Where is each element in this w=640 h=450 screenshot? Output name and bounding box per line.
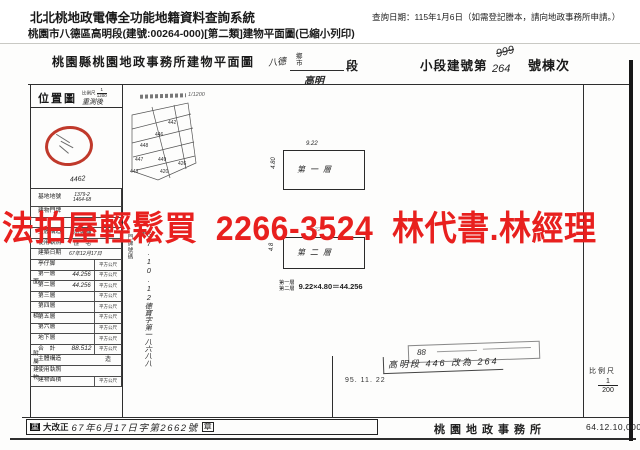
- table-row: 使用執照: [30, 366, 122, 377]
- row-unit: 平方公尺: [94, 377, 121, 387]
- map-note-bottom: 4462: [70, 175, 86, 183]
- watermark-text: 法拍屋輕鬆買 2266-3524 林代書.林經理: [2, 202, 597, 251]
- row-label: 建築日期: [31, 251, 69, 257]
- floor1-height-dim: 4.80: [271, 157, 277, 169]
- doc-township-handwriting: 八德: [267, 54, 286, 69]
- table-row: 第五層 平方公尺: [30, 313, 122, 324]
- row-label: 亭仔脚: [31, 262, 69, 268]
- map-note-top: 重測後: [82, 97, 103, 107]
- page-edge-line: [10, 438, 636, 440]
- row-value: 67年12月17日: [69, 252, 102, 257]
- table-row: 合 計 88.512 平方公尺: [30, 345, 122, 356]
- document-subtitle: 桃園市八德區高明段(建號:00264-000)[第二類]建物平面圖(已縮小列印): [28, 26, 355, 41]
- table-section-annex-label: 附屬建物: [32, 350, 38, 382]
- fill-in-line: [290, 70, 344, 71]
- frame-bottom-line: [22, 417, 631, 418]
- table-row: 第一層 44.256 平方公尺: [30, 271, 122, 282]
- page: 北北桃地政電傳全功能地籍資料查詢系統 查詢日期：115年1月6日（如需登記謄本，…: [0, 0, 640, 450]
- lot-number: 420: [160, 169, 169, 175]
- revision-label-head: 重: [30, 423, 40, 432]
- row-value: 88.512: [69, 346, 94, 353]
- plan-scale-denominator: 200: [598, 385, 618, 394]
- revision-seal: 章: [202, 422, 214, 433]
- row-value: 44.256: [69, 283, 94, 289]
- floor1-width-dim: 9.22: [306, 141, 318, 147]
- table-row: 第四層 平方公尺: [30, 302, 122, 313]
- row-value: 44.256: [69, 272, 94, 278]
- license-vertical-note: 67.10.12德寶字第一八六八八號: [138, 230, 152, 370]
- system-title: 北北桃地政電傳全功能地籍資料查詢系統: [30, 7, 255, 26]
- revision-handwriting: 67年6月17日字第2662號: [72, 420, 199, 434]
- illegible-stamp-text: [483, 347, 531, 350]
- table-row: 主體構造 造: [30, 355, 122, 366]
- row-unit: 平方公尺: [94, 302, 121, 312]
- row-value: 1379-2 1464-68: [69, 193, 95, 203]
- table-row: 建物面積 平方公尺: [30, 377, 122, 388]
- row-unit: 平方公尺: [94, 345, 121, 355]
- map-scale-numerator: 1: [101, 87, 104, 92]
- map-header-line: [30, 107, 122, 108]
- row-unit: 平方公尺: [94, 260, 121, 270]
- floor1-label: 第一層: [297, 164, 336, 175]
- row-unit: 平方公尺: [94, 334, 121, 344]
- lot-number: 446: [155, 132, 164, 138]
- revision-label: 大改正: [43, 421, 69, 433]
- scan-right-edge: [629, 60, 633, 441]
- building-no-suffix: 號棟次: [528, 55, 570, 74]
- table-row: 亭仔脚 平方公尺: [30, 260, 122, 271]
- frame-top-line: [28, 84, 631, 85]
- table-row: 建築日期 67年12月17日: [30, 249, 122, 260]
- calc-floor2: 第二層: [279, 287, 295, 292]
- cadastral-sketch: 442 446 448 447 449 426 448 420: [128, 101, 198, 181]
- table-row: 地下層 平方公尺: [30, 334, 122, 345]
- doc-title: 桃園縣桃園地政事務所建物平面圖: [52, 53, 255, 70]
- table-row: 第二層 44.256 平方公尺: [30, 281, 122, 292]
- plan-scale-label: 比例尺: [589, 366, 616, 376]
- location-map-title: 位置圖: [38, 90, 77, 106]
- lower-divider-line: [332, 356, 333, 417]
- revision-stamp-row: 重 大改正 67年6月17日字第2662號 章: [26, 419, 378, 435]
- lot-number: 447: [135, 157, 144, 163]
- building-no-prefix: 小段建號第: [420, 55, 488, 74]
- doc-shi-label: 市: [296, 60, 303, 67]
- table-row: 第六層 平方公尺: [30, 324, 122, 335]
- query-date: 查詢日期：115年1月6日（如需登記謄本，請向地政事務所申請。）: [372, 11, 620, 23]
- table-section-area-label: 面積: [32, 278, 38, 346]
- plan-scale-numerator: 1: [606, 378, 610, 385]
- sketch-scale-note: 1/1200: [188, 92, 205, 98]
- row-unit: 平方公尺: [94, 281, 121, 291]
- lot-number: 449: [158, 157, 167, 163]
- row-unit: 造: [95, 357, 121, 363]
- row-unit: 平方公尺: [94, 292, 121, 302]
- row-unit: 平方公尺: [94, 271, 121, 281]
- office-name: 桃園地政事務所: [434, 421, 546, 437]
- building-no-new: 264: [492, 63, 510, 75]
- calc-expression: 9.22×4.80＝44.256: [299, 281, 363, 292]
- survey-date: 95. 11. 22: [345, 377, 386, 384]
- doc-section-label: 段: [346, 57, 358, 74]
- lot-number: 448: [140, 143, 149, 149]
- row-unit: 平方公尺: [94, 313, 121, 323]
- map-scale-label: 比例尺: [82, 91, 96, 96]
- lot-number: 426: [178, 161, 187, 167]
- lot-number: 442: [168, 120, 177, 126]
- lot-number: 448: [130, 169, 139, 175]
- row-unit: 平方公尺: [94, 324, 121, 334]
- area-calculation: 第一層 第二層 9.22×4.80＝44.256: [279, 281, 363, 292]
- row-label: 基地地號: [31, 195, 69, 201]
- print-code: 64.12.10,000: [586, 422, 640, 432]
- table-row: 第三層 平方公尺: [30, 292, 122, 303]
- illegible-stamp-text: [437, 350, 477, 352]
